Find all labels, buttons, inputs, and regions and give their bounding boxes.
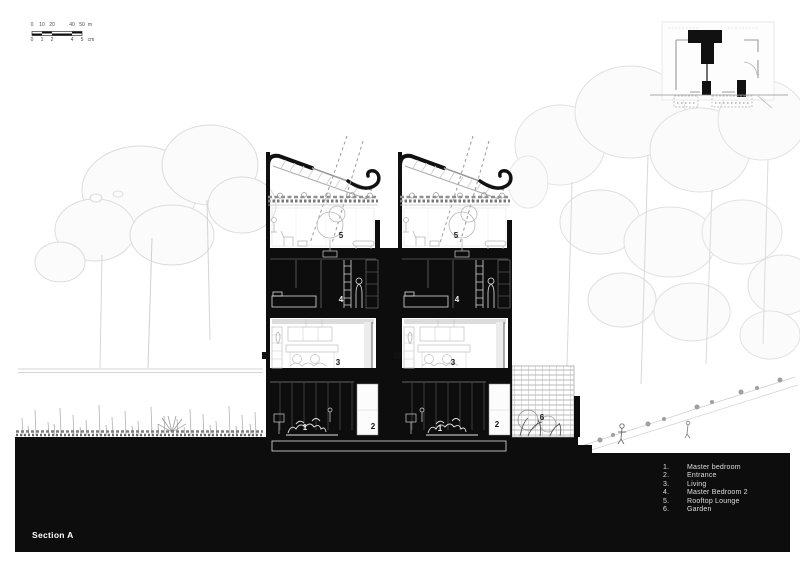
legend-item: 2. Entrance xyxy=(663,472,748,480)
key-plan-thumbnail xyxy=(650,22,788,108)
room-label-living: 3 xyxy=(336,359,340,367)
room-label-master-bedroom: 1 xyxy=(303,424,307,432)
room-label-entrance: 2 xyxy=(495,421,499,429)
scale-tick: 10 xyxy=(39,23,45,28)
room-label-master-bedroom: 1 xyxy=(438,425,442,433)
scale-tick: 0 xyxy=(31,23,34,28)
legend-item-number: 1. xyxy=(663,464,687,472)
scale-tick: cm xyxy=(88,38,95,43)
room-label-living: 3 xyxy=(451,359,455,367)
room-label-master-bedroom-2: 4 xyxy=(339,296,343,304)
scale-tick: 0 xyxy=(31,38,34,43)
legend-item: 5. Rooftop Lounge xyxy=(663,498,748,506)
scale-tick: 5 xyxy=(81,38,84,43)
scale-tick: 4 xyxy=(71,38,74,43)
room-label-garden: 6 xyxy=(540,414,544,422)
scale-bar-graphic xyxy=(32,32,82,36)
scale-tick: 40 xyxy=(69,23,75,28)
legend-item: 6. Garden xyxy=(663,506,748,514)
legend-item-label: Master Bedroom 2 xyxy=(687,489,748,497)
person-figure xyxy=(685,421,690,438)
legend-item: 1. Master bedroom xyxy=(663,464,748,472)
legend: 1. Master bedroom 2. Entrance 3. Living … xyxy=(663,464,748,514)
legend-item-label: Living xyxy=(687,481,707,489)
room-label-master-bedroom-2: 4 xyxy=(455,296,459,304)
legend-item: 3. Living xyxy=(663,481,748,489)
legend-item-label: Master bedroom xyxy=(687,464,741,472)
legend-item-number: 4. xyxy=(663,489,687,497)
scale-tick: 20 xyxy=(49,23,55,28)
legend-item-number: 5. xyxy=(663,498,687,506)
scale-tick: 1 xyxy=(41,38,44,43)
legend-item: 4. Master Bedroom 2 xyxy=(663,489,748,497)
hillside-path xyxy=(578,377,798,452)
section-sheet: 0 10 20 40 50 m 0 1 2 4 5 cm 5 5 4 4 3 3… xyxy=(0,0,800,565)
scale-tick: 2 xyxy=(51,38,54,43)
legend-item-label: Garden xyxy=(687,506,712,514)
legend-item-label: Entrance xyxy=(687,472,717,480)
room-label-entrance: 2 xyxy=(371,423,375,431)
garden-wall xyxy=(512,366,580,437)
room-label-rooftop-lounge: 5 xyxy=(339,232,343,240)
scale-tick: 50 xyxy=(79,23,85,28)
legend-item-label: Rooftop Lounge xyxy=(687,498,740,506)
scale-tick: m xyxy=(88,23,92,28)
legend-item-number: 2. xyxy=(663,472,687,480)
legend-item-number: 6. xyxy=(663,506,687,514)
legend-item-number: 3. xyxy=(663,481,687,489)
room-label-rooftop-lounge: 5 xyxy=(454,232,458,240)
section-title: Section A xyxy=(32,530,74,540)
building-structure xyxy=(266,152,512,437)
